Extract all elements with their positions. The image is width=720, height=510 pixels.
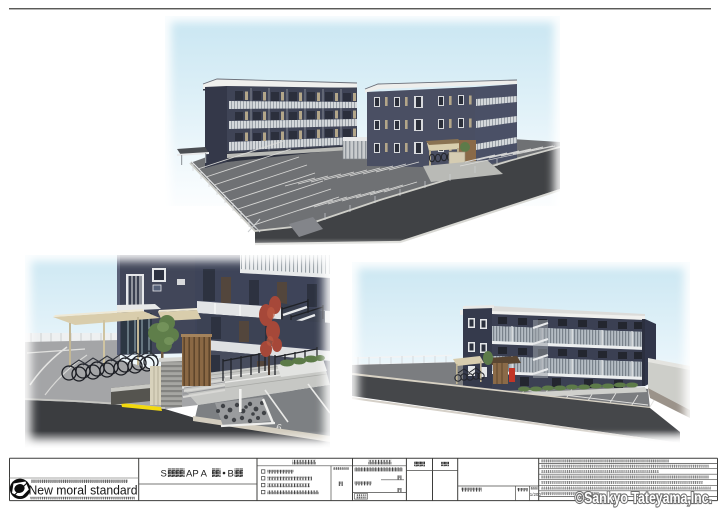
svg-text:©Sankyo Tateyama,Inc.: ©Sankyo Tateyama,Inc. [575,490,712,507]
svg-text:1/200: 1/200 [530,492,542,497]
svg-text:AP A: AP A [186,469,208,480]
svg-text:S: S [161,469,167,480]
svg-text:B: B [228,469,234,480]
svg-text:New moral standard: New moral standard [29,484,138,498]
